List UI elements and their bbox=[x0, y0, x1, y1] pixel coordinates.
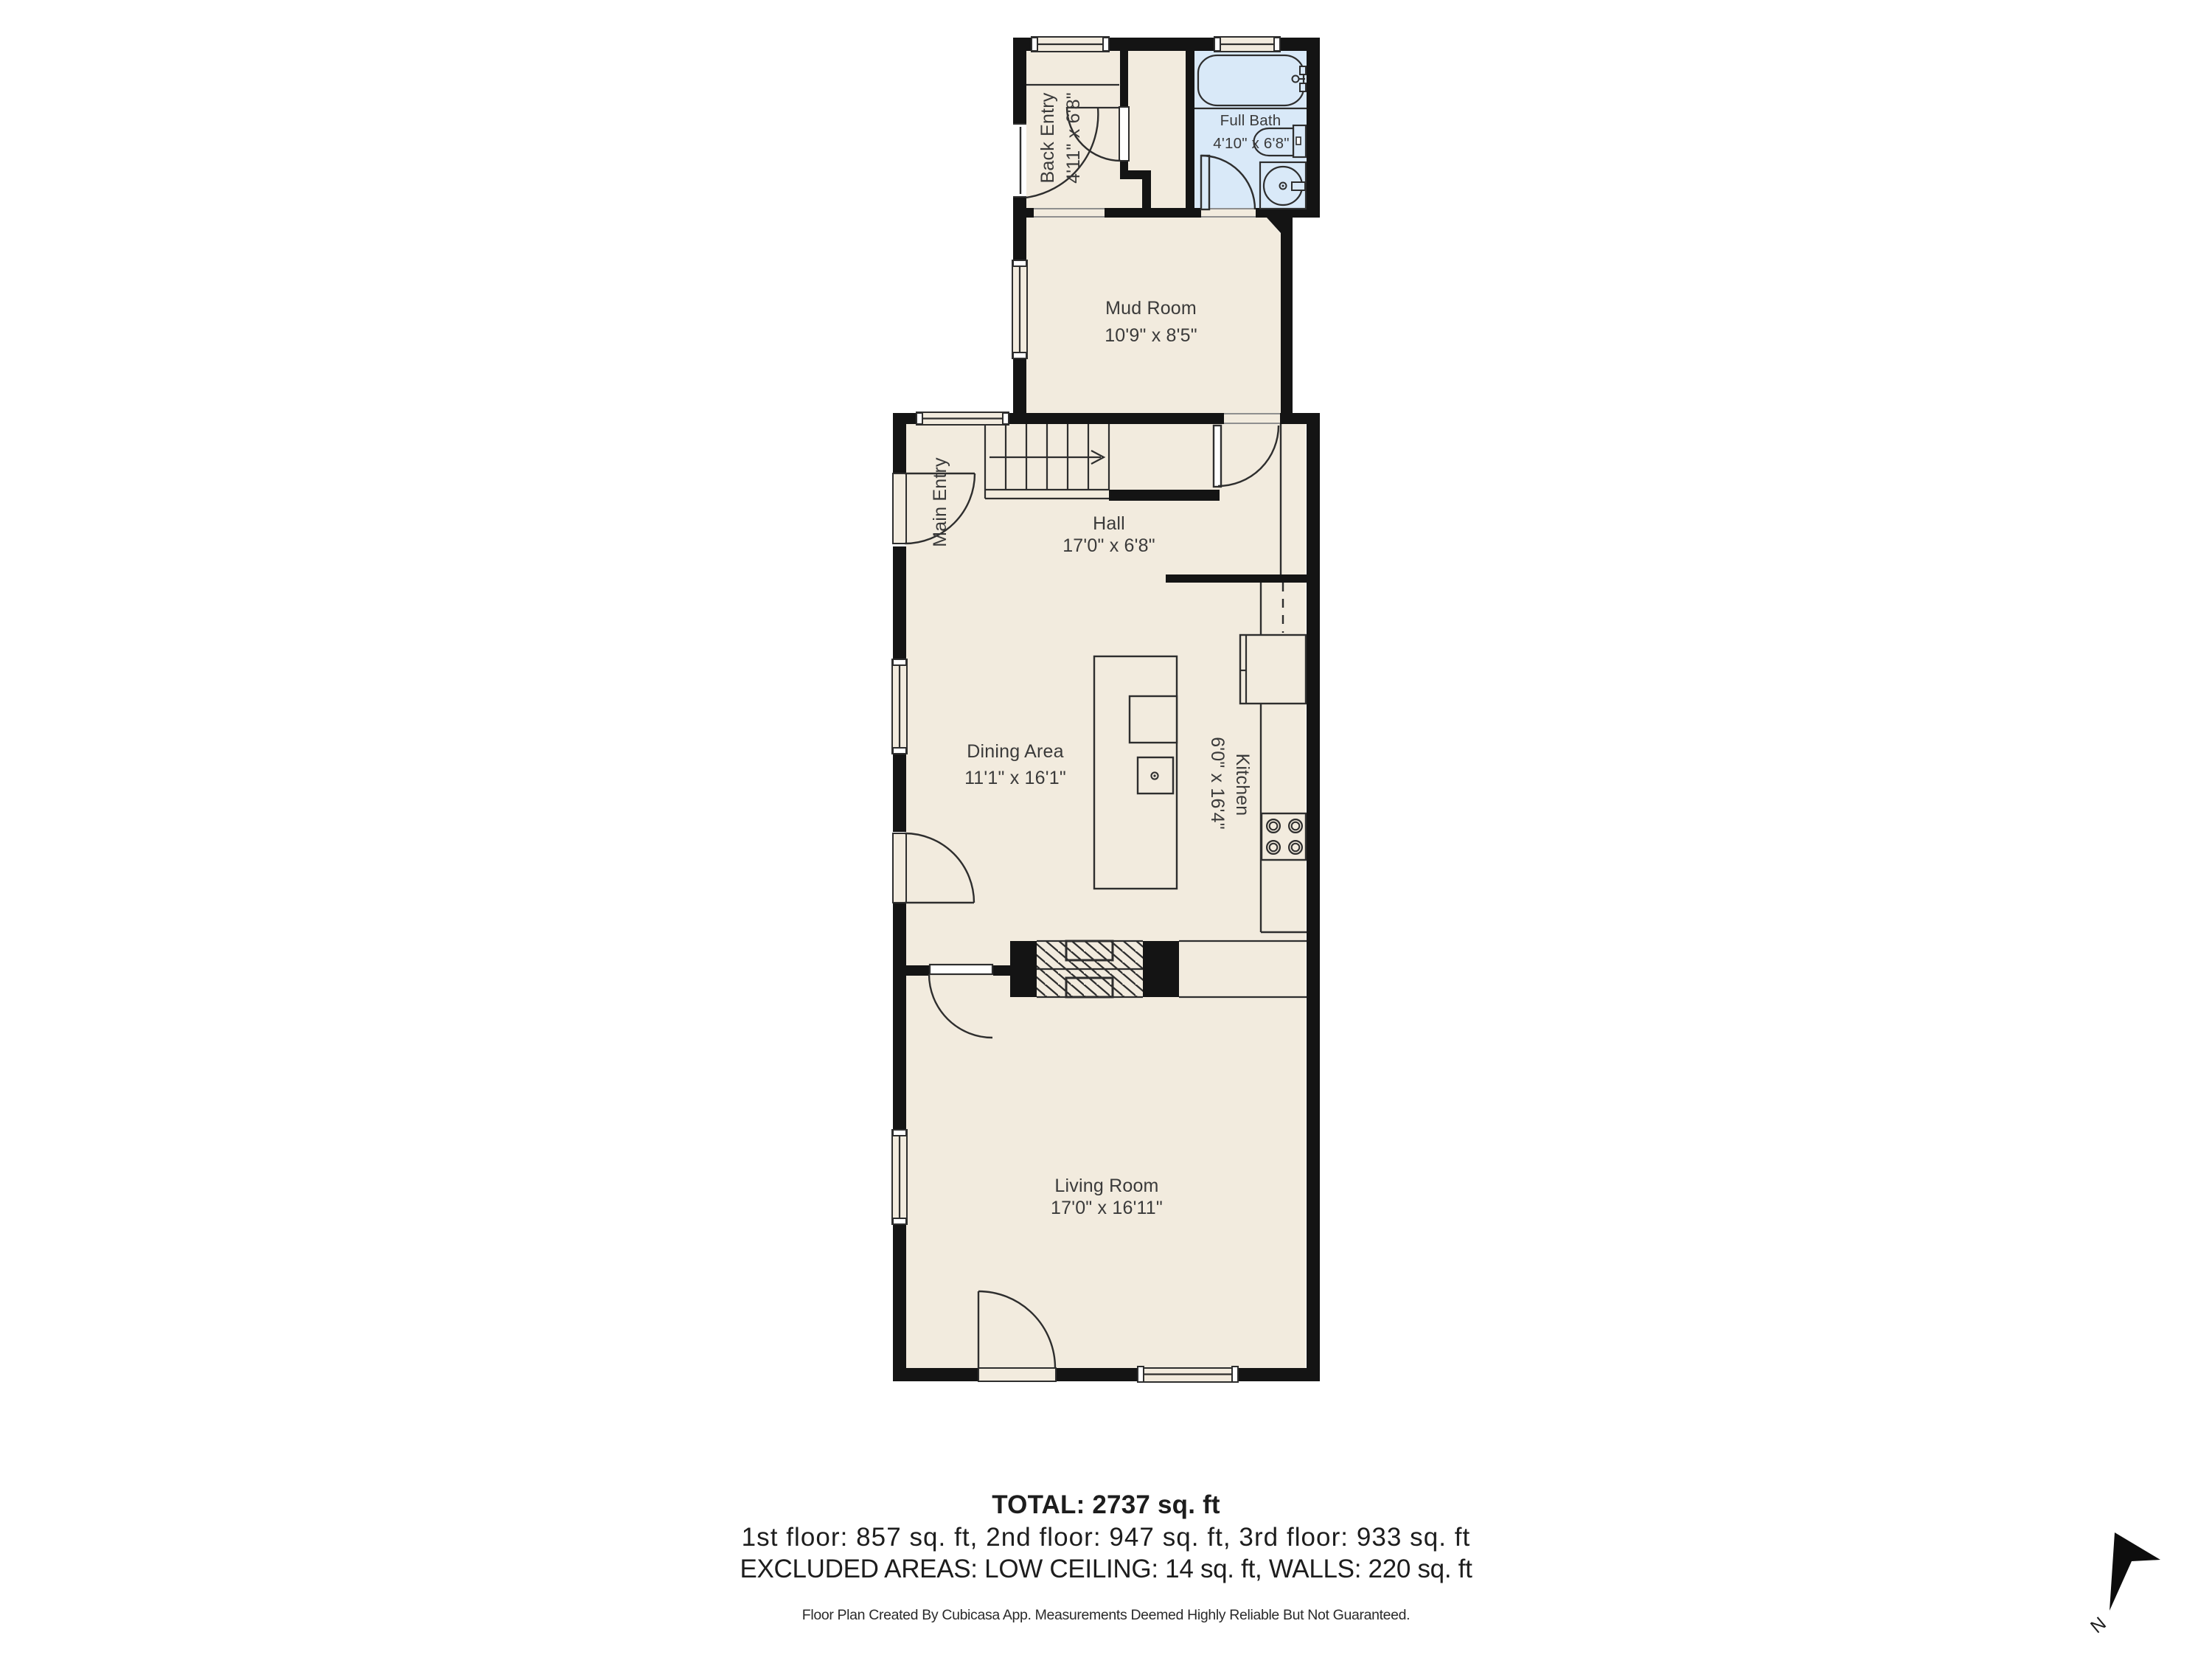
svg-text:Hall: Hall bbox=[1093, 513, 1125, 534]
svg-text:Main Entry: Main Entry bbox=[930, 457, 950, 547]
svg-text:11'1" x 16'1": 11'1" x 16'1" bbox=[964, 768, 1066, 788]
svg-text:17'0" x 16'11": 17'0" x 16'11" bbox=[1051, 1198, 1163, 1218]
svg-text:10'9" x 8'5": 10'9" x 8'5" bbox=[1105, 325, 1197, 346]
svg-text:EXCLUDED AREAS: LOW CEILING: 1: EXCLUDED AREAS: LOW CEILING: 14 sq. ft, … bbox=[740, 1555, 1472, 1583]
svg-text:Mud Room: Mud Room bbox=[1105, 298, 1197, 319]
svg-text:Dining Area: Dining Area bbox=[967, 741, 1063, 762]
svg-text:4'11" x 6'8": 4'11" x 6'8" bbox=[1063, 92, 1084, 184]
svg-text:17'0" x 6'8": 17'0" x 6'8" bbox=[1062, 535, 1155, 556]
svg-text:N: N bbox=[2087, 1613, 2110, 1637]
svg-text:Floor Plan Created By Cubicasa: Floor Plan Created By Cubicasa App. Meas… bbox=[802, 1607, 1410, 1623]
svg-text:Kitchen: Kitchen bbox=[1232, 754, 1253, 816]
svg-text:Back Entry: Back Entry bbox=[1037, 92, 1058, 183]
svg-text:4'10" x 6'8": 4'10" x 6'8" bbox=[1213, 135, 1289, 152]
svg-text:6'0" x 16'4": 6'0" x 16'4" bbox=[1207, 737, 1228, 830]
svg-text:Full Bath: Full Bath bbox=[1220, 112, 1281, 129]
svg-text:Living Room: Living Room bbox=[1054, 1176, 1158, 1196]
svg-text:TOTAL: 2737 sq. ft: TOTAL: 2737 sq. ft bbox=[992, 1490, 1220, 1519]
svg-text:1st floor: 857 sq. ft, 2nd flo: 1st floor: 857 sq. ft, 2nd floor: 947 sq… bbox=[742, 1523, 1471, 1552]
